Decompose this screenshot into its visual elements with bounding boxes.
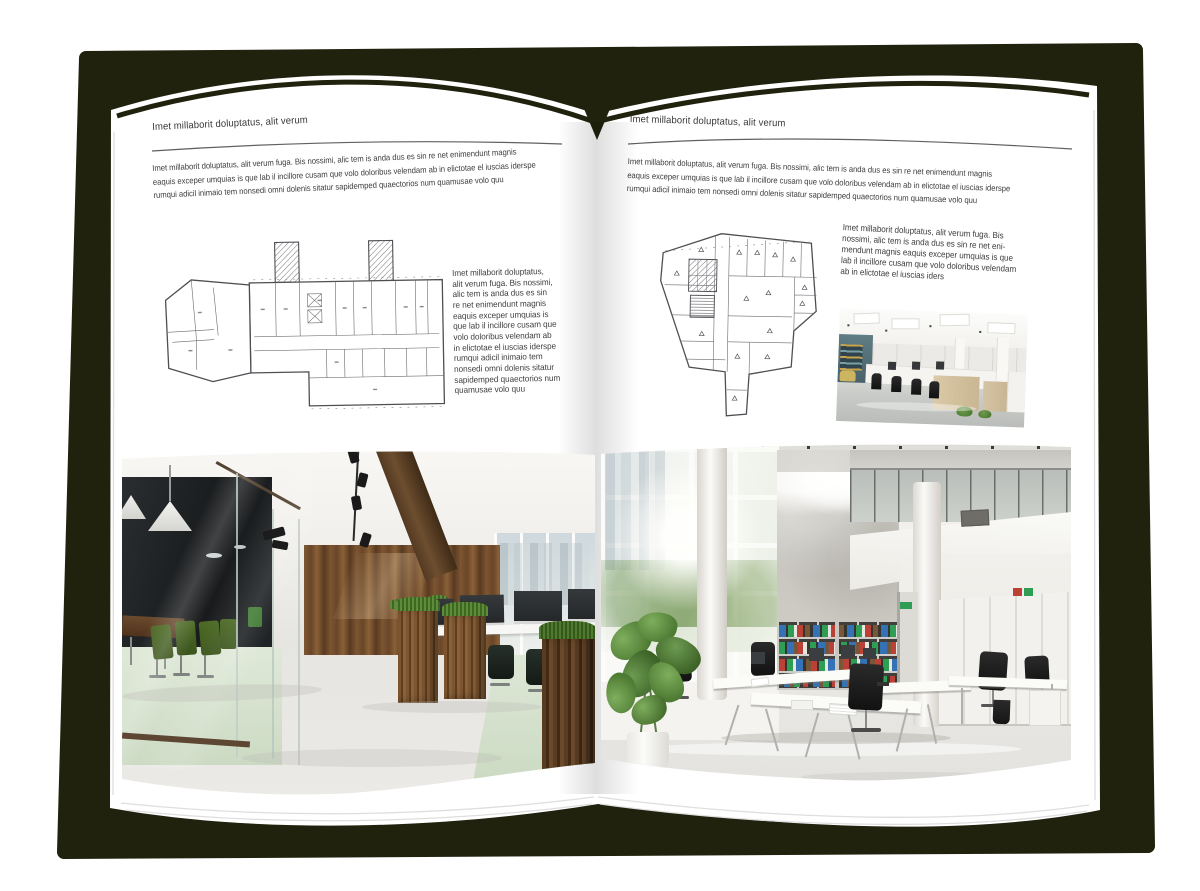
ceiling-spotlight-dot	[979, 331, 981, 333]
floor-shadow	[721, 732, 951, 744]
yellow-seat	[839, 370, 855, 382]
trash-bin	[993, 700, 1011, 725]
desk-leg	[961, 688, 963, 724]
monitor	[514, 591, 562, 624]
white-cabinet	[1006, 372, 1026, 413]
right-office-photo	[601, 442, 1071, 792]
ceiling-spotlight-dot	[847, 324, 849, 326]
potted-plant-group	[601, 612, 711, 777]
sun-glare	[611, 462, 761, 612]
desk-papers	[791, 700, 813, 710]
first-aid-sign-green	[1024, 588, 1033, 596]
potted-plant	[978, 410, 991, 418]
monitor	[863, 648, 876, 659]
wood-planter	[444, 613, 486, 699]
ceiling-spotlight-dot	[885, 330, 887, 332]
right-floor-plan	[648, 218, 827, 423]
first-aid-sign-red	[1013, 588, 1022, 596]
brochure-spread-mockup: Imet millaborit doluptatus, alit verum I…	[0, 0, 1200, 891]
monitor	[936, 361, 944, 369]
office-chair	[891, 376, 902, 392]
monitor	[568, 589, 595, 622]
left-page-content: Imet millaborit doluptatus, alit verum I…	[0, 0, 600, 891]
office-chair	[871, 373, 882, 389]
planter-grass	[396, 597, 440, 611]
monitor	[888, 362, 896, 370]
small-office-photo	[836, 308, 1028, 427]
light-panel	[940, 314, 970, 327]
light-panel	[853, 312, 879, 324]
office-chair	[911, 379, 922, 395]
ceiling-spotlight-dot	[929, 325, 931, 327]
planter-grass	[539, 621, 595, 639]
exit-sign	[900, 602, 912, 609]
right-page-title: Imet millaborit doluptatus, alit verum	[630, 114, 786, 129]
shelf-unit	[840, 344, 863, 371]
wood-planter	[398, 607, 438, 703]
light-panel	[891, 318, 919, 329]
ceiling-spotlight-dots	[761, 446, 1071, 449]
wood-planter-foreground	[542, 635, 595, 787]
monitor	[809, 648, 824, 661]
office-chair	[929, 381, 940, 398]
planter-grass	[442, 602, 488, 616]
air-vent	[961, 509, 990, 526]
right-caption-block: Imet millaborit doluptatus, alit verum f…	[840, 222, 1045, 287]
drawer-unit	[1029, 690, 1061, 726]
monitor	[751, 652, 765, 664]
floor-shadow	[242, 749, 502, 767]
floor-shadow	[362, 701, 542, 713]
chair-base	[851, 728, 881, 732]
office-chair-foreground	[848, 663, 884, 711]
left-office-photo	[122, 449, 595, 801]
chair-post	[865, 710, 867, 728]
left-floor-plan	[157, 235, 450, 412]
left-caption-column: Imet millaborit doluptatus, alit verum f…	[452, 265, 578, 395]
glass-sheen	[122, 469, 312, 769]
right-header-rule	[626, 132, 1076, 154]
office-chair	[488, 645, 514, 679]
chair-star-base	[490, 683, 510, 686]
left-page-title: Imet millaborit doluptatus, alit verum	[152, 115, 308, 133]
right-intro-paragraph: Imet millaborit doluptatus, alit verum f…	[627, 155, 1051, 211]
monitor	[912, 362, 920, 370]
chair-armrest	[877, 682, 889, 686]
monitor	[841, 645, 855, 657]
light-panel	[987, 322, 1015, 334]
